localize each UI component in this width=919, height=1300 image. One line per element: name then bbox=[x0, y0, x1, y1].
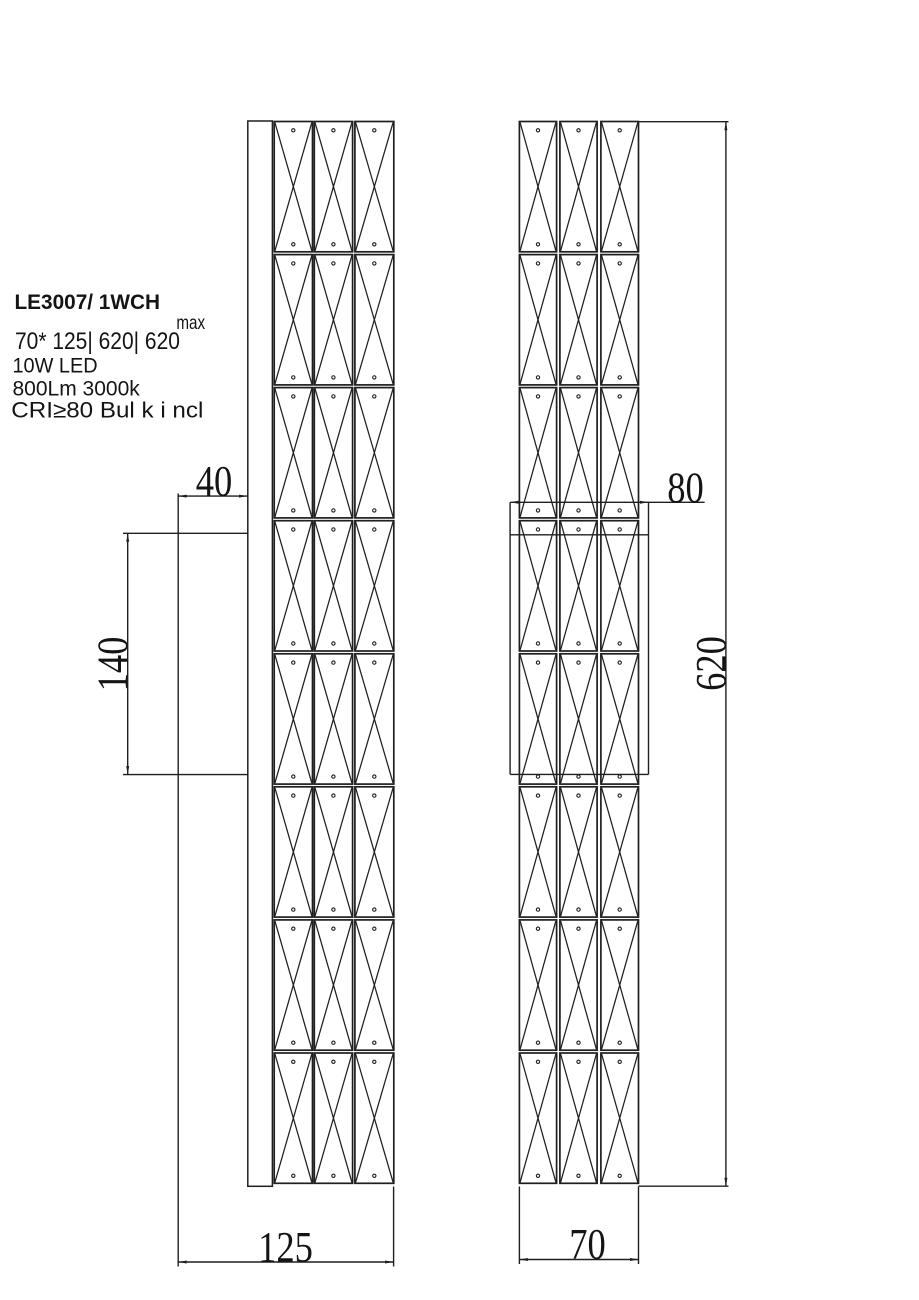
svg-text:70: 70 bbox=[569, 1220, 606, 1268]
svg-text:125: 125 bbox=[258, 1223, 313, 1271]
svg-text:CRI≥80 Bul k i ncl: CRI≥80 Bul k i ncl bbox=[11, 398, 203, 423]
svg-text:620: 620 bbox=[687, 636, 735, 691]
svg-text:40: 40 bbox=[196, 457, 233, 505]
svg-text:70* 125| 620| 620: 70* 125| 620| 620 bbox=[15, 328, 180, 355]
svg-text:140: 140 bbox=[88, 637, 136, 692]
svg-text:10W LED: 10W LED bbox=[13, 354, 98, 378]
svg-text:LE3007/ 1WCH: LE3007/ 1WCH bbox=[15, 291, 160, 314]
svg-text:80: 80 bbox=[667, 463, 704, 511]
svg-text:max: max bbox=[176, 311, 205, 333]
